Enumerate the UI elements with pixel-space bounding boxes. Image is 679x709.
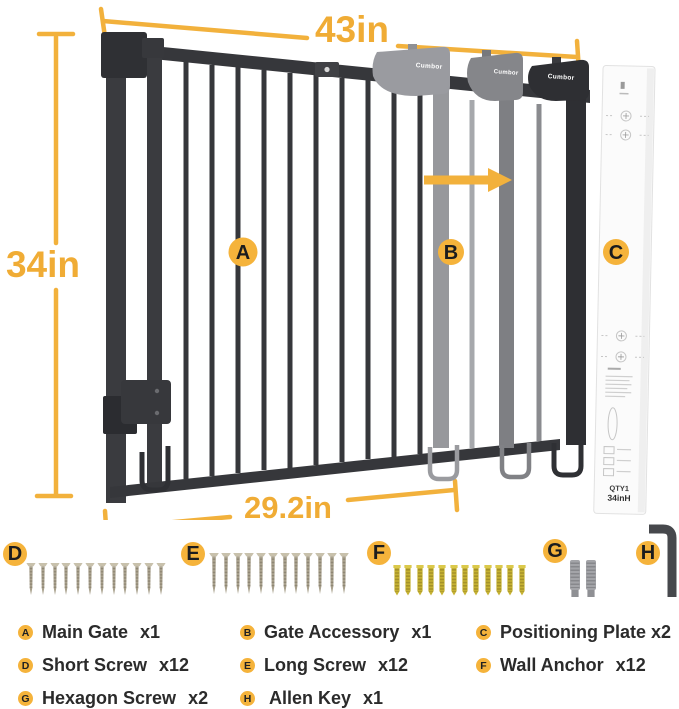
callout-b-letter: B [444,242,458,264]
plate-qty-label: QTY1 [609,484,629,493]
legend-badge-h: H [240,691,255,706]
legend-name: Short Screw [42,655,147,676]
callout-c: C [603,239,629,265]
legend-name: Wall Anchor [500,655,604,676]
legend-badge-d: D [18,658,33,673]
hardware-badge-e-letter: E [186,543,199,565]
legend-qty: x1 [411,622,431,643]
legend-qty: x12 [159,655,189,676]
legend-item-wall-anchor: F Wall Anchor x12 [476,655,646,676]
legend-item-gate-accessory: B Gate Accessory x1 [240,622,431,643]
legend-qty: x2 [651,622,671,643]
legend-badge-a: A [18,625,33,640]
hardware-badge-g-letter: G [547,540,563,562]
legend-name: Gate Accessory [264,622,399,643]
legend-item-main-gate: A Main Gate x1 [18,622,160,643]
latch-housing-ghost-2 [467,53,523,101]
rail-connector [315,62,339,77]
gate-illustration: 43in 34in 29.2in [0,0,679,520]
legend-name: Main Gate [42,622,128,643]
hardware-badge-h-letter: H [641,542,655,564]
main-gate [101,32,590,503]
dim-bottom-label: 29.2in [244,490,332,520]
hardware-row: D E F G H [0,518,679,610]
legend-badge-e: E [240,658,255,673]
gate-accessory: Cumbor Cumbor Cumbor [373,44,590,479]
legend-item-allen-key: H Allen Key x1 [240,688,383,709]
long-screws-group [209,553,349,594]
hexagon-screws-group [570,560,596,597]
legend-item-short-screw: D Short Screw x12 [18,655,189,676]
legend-name: Allen Key [269,688,351,709]
gate-bars [186,62,420,479]
legend-qty: x12 [378,655,408,676]
dim-width-label: 43in [315,9,389,50]
dimension-left-height: 34in [6,34,80,496]
hardware-badge-f-letter: F [373,542,385,564]
legend-name: Hexagon Screw [42,688,176,709]
legend-qty: x2 [188,688,208,709]
latch-housing-ghost-1 [373,47,451,96]
legend-badge-g: G [18,691,33,706]
legend-qty: x1 [140,622,160,643]
legend-name: Positioning Plate [500,622,646,643]
legend-qty: x1 [363,688,383,709]
legend-badge-f: F [476,658,491,673]
legend-badge-b: B [240,625,255,640]
legend-qty: x12 [616,655,646,676]
wall-anchors-group [393,565,525,596]
callout-a: A [229,238,258,267]
callout-a-letter: A [236,242,250,264]
positioning-plate: QTY1 34inH [594,65,655,514]
legend-item-long-screw: E Long Screw x12 [240,655,408,676]
legend-badge-c: C [476,625,491,640]
baby-gate-parts-diagram: 43in 34in 29.2in [0,0,679,709]
hardware-badge-d-letter: D [8,543,22,565]
callout-c-letter: C [609,242,623,264]
legend-item-positioning-plate: C Positioning Plate x2 [476,622,671,643]
callout-b: B [438,239,464,265]
dim-height-label: 34in [6,244,80,285]
plate-size-label: 34inH [607,493,630,503]
legend-item-hexagon-screw: G Hexagon Screw x2 [18,688,208,709]
legend-name: Long Screw [264,655,366,676]
short-screws-group [26,563,165,595]
